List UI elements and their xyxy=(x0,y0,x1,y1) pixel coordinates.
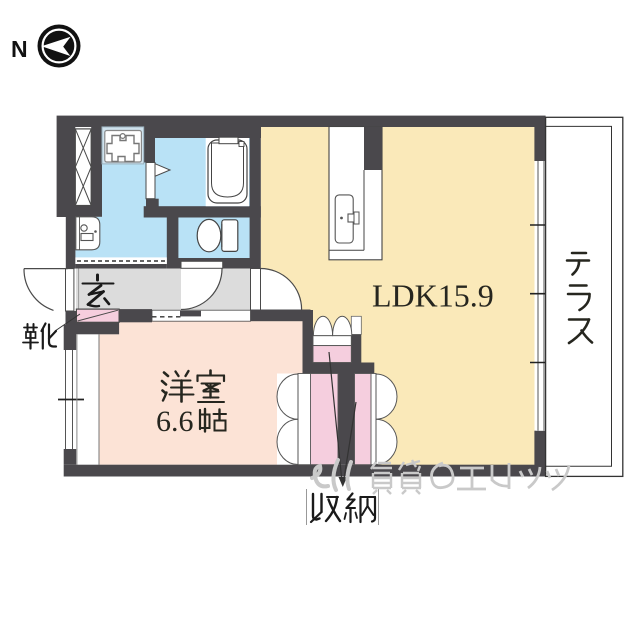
svg-text:6.6: 6.6 xyxy=(156,405,194,438)
svg-text:N: N xyxy=(11,36,28,62)
svg-text:LDK15.9: LDK15.9 xyxy=(372,278,494,314)
